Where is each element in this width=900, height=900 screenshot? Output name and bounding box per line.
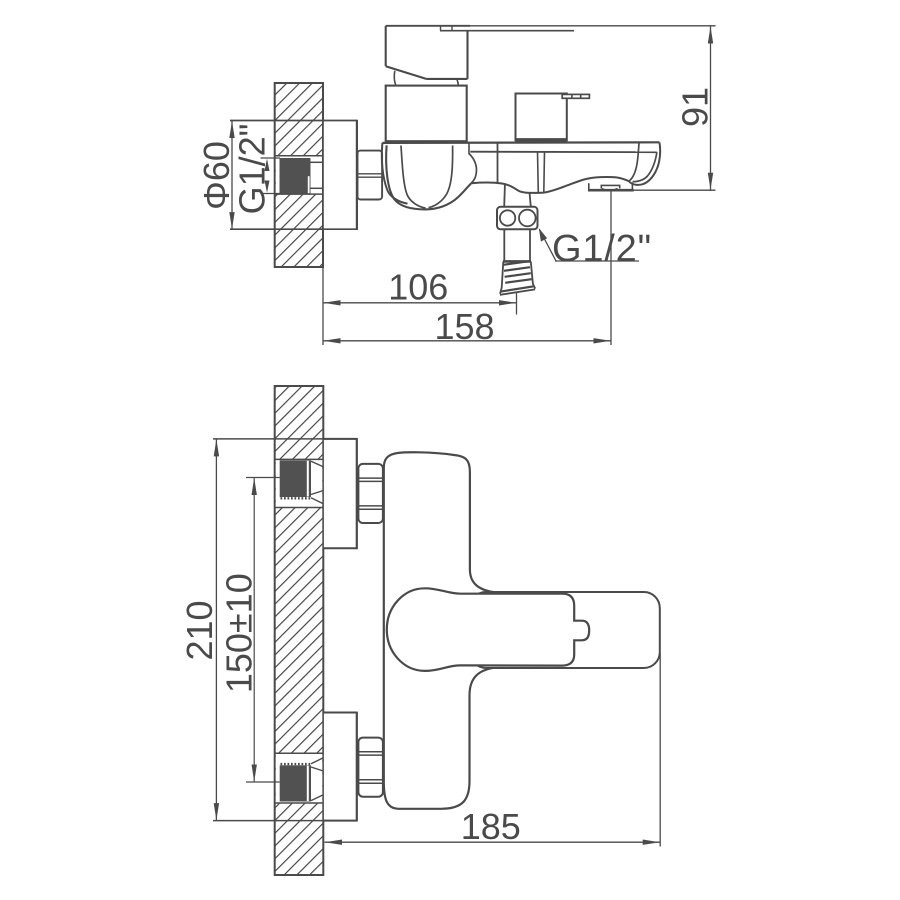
svg-text:210: 210 <box>179 600 220 660</box>
svg-text:185: 185 <box>461 806 521 847</box>
svg-text:91: 91 <box>675 87 716 127</box>
svg-text:G1/2": G1/2" <box>552 228 652 270</box>
svg-text:158: 158 <box>434 306 494 347</box>
svg-text:150±10: 150±10 <box>219 573 260 693</box>
svg-text:106: 106 <box>388 267 448 308</box>
svg-text:G1/2": G1/2" <box>232 124 273 215</box>
